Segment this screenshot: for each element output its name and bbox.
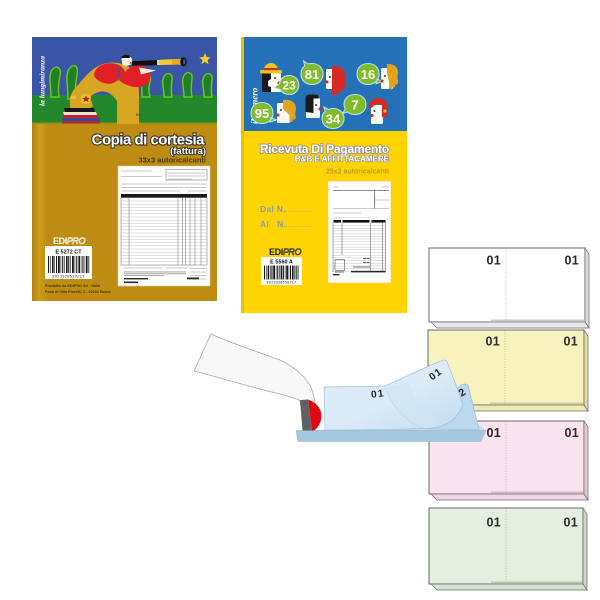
svg-text:01: 01 bbox=[371, 388, 386, 401]
svg-text:E 5272 CT: E 5272 CT bbox=[55, 250, 82, 256]
svg-text:81: 81 bbox=[305, 67, 319, 82]
svg-text:Dal N.: Dal N. bbox=[260, 204, 286, 214]
svg-text:B&B E AFFITTACAMERE: B&B E AFFITTACAMERE bbox=[295, 155, 390, 164]
svg-text:95: 95 bbox=[255, 106, 269, 121]
svg-text:01: 01 bbox=[563, 516, 578, 530]
svg-text:23: 23 bbox=[282, 79, 296, 93]
svg-text:01: 01 bbox=[486, 516, 501, 530]
svg-text:01: 01 bbox=[563, 335, 578, 349]
svg-text:Prodotto da EDIPRO Srl - Itali: Prodotto da EDIPRO Srl - Italia bbox=[45, 284, 101, 288]
svg-text:SG: SG bbox=[136, 112, 142, 117]
svg-text:Al N.: Al N. bbox=[260, 219, 286, 229]
svg-text:8023328556217: 8023328556217 bbox=[267, 280, 297, 284]
svg-text:la lungimiranza: la lungimiranza bbox=[38, 56, 47, 106]
svg-text:25x2 autoricalcanti: 25x2 autoricalcanti bbox=[326, 169, 389, 176]
svg-text:EDIPRO: EDIPRO bbox=[269, 247, 302, 257]
svg-text:P.zza di Villa Fiorelli, 1 - 0: P.zza di Villa Fiorelli, 1 - 00182 Roma bbox=[45, 290, 111, 294]
svg-text:33x3 autoricalcanti: 33x3 autoricalcanti bbox=[138, 156, 206, 165]
svg-text:01: 01 bbox=[486, 254, 501, 268]
svg-text:8023328527211: 8023328527211 bbox=[52, 275, 84, 279]
svg-text:EDIPRO: EDIPRO bbox=[53, 236, 86, 246]
svg-text:01: 01 bbox=[564, 254, 579, 268]
svg-text:7: 7 bbox=[351, 98, 358, 113]
svg-text:16: 16 bbox=[361, 67, 375, 82]
svg-text:01: 01 bbox=[564, 426, 579, 440]
svg-text:E 5560 A: E 5560 A bbox=[270, 260, 293, 266]
svg-text:34: 34 bbox=[326, 112, 341, 127]
